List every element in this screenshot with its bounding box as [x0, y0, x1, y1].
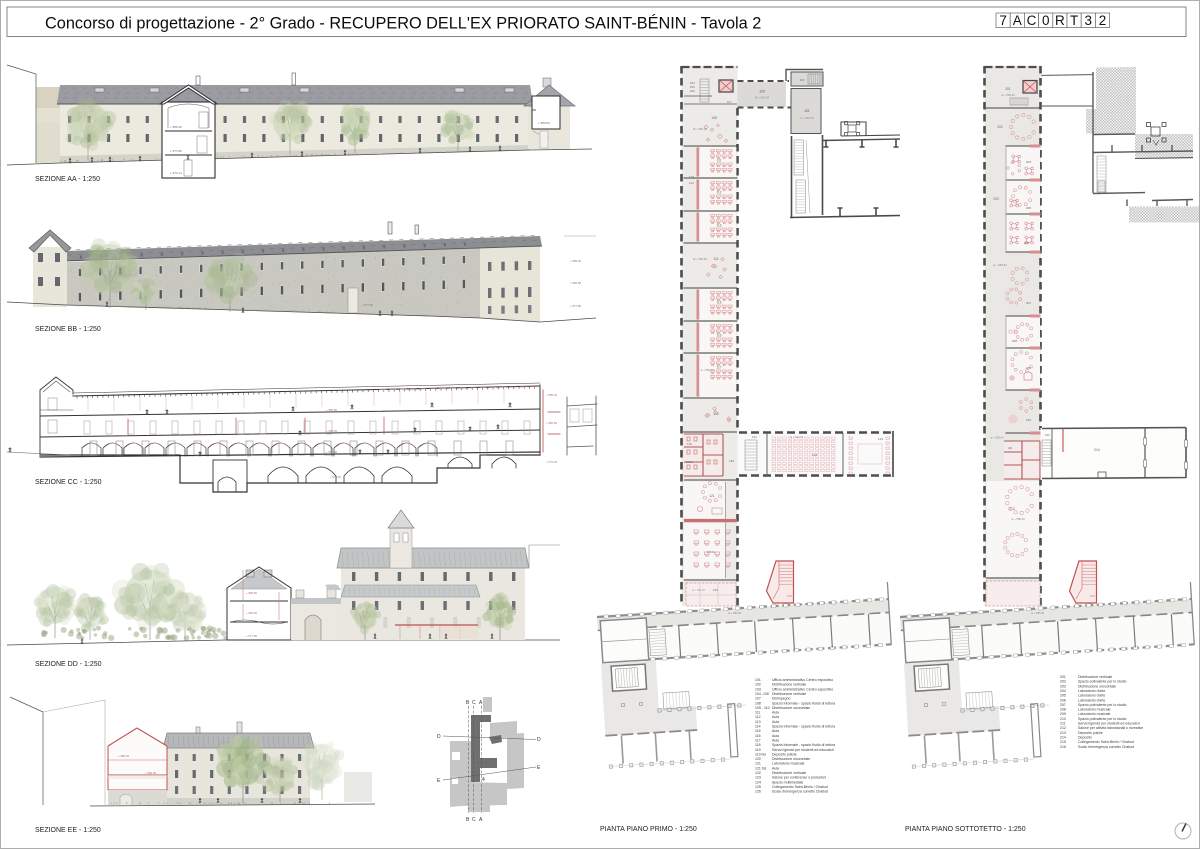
svg-text:115: 115: [755, 729, 761, 733]
svg-text:117: 117: [755, 738, 761, 742]
svg-text:Distribuzione orizzontale: Distribuzione orizzontale: [1078, 684, 1116, 688]
svg-text:SEZIONE AA - 1:250: SEZIONE AA - 1:250: [35, 176, 100, 183]
svg-text:SEZIONE BB - 1:250: SEZIONE BB - 1:250: [35, 326, 101, 333]
svg-text:C: C: [472, 700, 476, 706]
svg-text:D: D: [537, 737, 541, 743]
svg-text:215: 215: [1060, 740, 1066, 744]
svg-text:⊕ + 582.84: ⊕ + 582.84: [790, 435, 804, 439]
svg-text:206: 206: [1060, 698, 1066, 702]
svg-text:Spazio informale - spazio flui: Spazio informale - spazio fluido di lett…: [772, 725, 835, 729]
svg-text:114: 114: [713, 257, 718, 261]
svg-text:125: 125: [755, 785, 761, 789]
svg-text:+ 577.96: + 577.96: [326, 450, 337, 454]
svg-text:7: 7: [999, 13, 1007, 28]
svg-text:PIANTA PIANO SOTTOTETTO - 1:25: PIANTA PIANO SOTTOTETTO - 1:250: [905, 826, 1026, 833]
svg-text:205: 205: [1060, 694, 1066, 698]
svg-text:203: 203: [993, 197, 999, 201]
svg-text:PIANTA PIANO PRIMO - 1:250: PIANTA PIANO PRIMO - 1:250: [600, 826, 697, 833]
svg-text:206: 206: [1024, 241, 1029, 245]
svg-text:204: 204: [1026, 160, 1031, 164]
svg-text:+ 580.36: + 580.36: [170, 125, 182, 129]
svg-text:Spazio polivalente per lo stud: Spazio polivalente per lo studio: [1078, 717, 1127, 721]
svg-text:C: C: [472, 817, 476, 823]
svg-text:Salone per conferenze o proiez: Salone per conferenze o proiezioni: [772, 776, 826, 780]
svg-text:Aula: Aula: [772, 715, 779, 719]
svg-text:T: T: [1070, 13, 1078, 28]
svg-text:⊕ + 582.25: ⊕ + 582.25: [693, 257, 708, 261]
svg-text:⊕ + 581.50: ⊕ + 581.50: [692, 588, 706, 592]
svg-text:Distribuzione orizzontale: Distribuzione orizzontale: [772, 706, 810, 710]
svg-text:124: 124: [755, 780, 761, 784]
svg-text:Aula: Aula: [772, 729, 779, 733]
svg-text:⊕ + 586.84: ⊕ + 586.84: [993, 263, 1007, 267]
svg-text:114: 114: [755, 725, 761, 729]
svg-text:120: 120: [729, 459, 734, 463]
svg-text:C: C: [1027, 13, 1037, 28]
svg-text:Distribuzione verticale: Distribuzione verticale: [772, 771, 806, 775]
svg-text:Aula: Aula: [772, 734, 779, 738]
svg-text:Scala d'emergenza convitto Cha: Scala d'emergenza convitto Chabod: [1078, 745, 1134, 749]
svg-text:112: 112: [716, 191, 721, 195]
svg-text:Laboratorio d'arte: Laboratorio d'arte: [1078, 694, 1105, 698]
svg-text:104 -106: 104 -106: [755, 692, 769, 696]
svg-text:213: 213: [1045, 433, 1050, 437]
svg-text:121: 121: [709, 494, 715, 498]
svg-text:Salone per attività laboratori: Salone per attività laboratoriali o ricr…: [1078, 726, 1143, 730]
svg-text:+ 582.56: + 582.56: [570, 281, 581, 285]
svg-text:Distribuzione verticale: Distribuzione verticale: [772, 683, 806, 687]
svg-text:121 bis: 121 bis: [755, 766, 767, 770]
svg-text:2: 2: [1099, 13, 1107, 28]
svg-text:Collegamento Saint-Bénin / Cha: Collegamento Saint-Bénin / Chabod: [772, 785, 828, 789]
svg-text:Concorso di progettazione - 2°: Concorso di progettazione - 2° Grado - R…: [45, 14, 761, 33]
svg-text:212: 212: [1060, 726, 1066, 730]
svg-text:113: 113: [755, 720, 761, 724]
svg-text:⊕ + 581.50: ⊕ + 581.50: [728, 611, 742, 615]
svg-text:213: 213: [1060, 731, 1066, 735]
svg-text:121: 121: [755, 762, 761, 766]
svg-text:118: 118: [755, 743, 761, 747]
svg-text:Spazio informale - spazio flui: Spazio informale - spazio fluido di lett…: [772, 743, 835, 747]
svg-text:⊕ + 586.29: ⊕ + 586.29: [1011, 517, 1025, 521]
svg-text:201: 201: [1005, 87, 1011, 91]
svg-text:+ 582.84: + 582.84: [538, 121, 550, 125]
svg-text:Laboratorio musicale: Laboratorio musicale: [1078, 712, 1111, 716]
svg-text:107: 107: [755, 697, 761, 701]
svg-text:Deposito: Deposito: [1078, 735, 1092, 739]
svg-text:122: 122: [755, 771, 761, 775]
svg-text:SEZIONE EE - 1:250: SEZIONE EE - 1:250: [35, 827, 101, 834]
svg-text:210: 210: [1026, 418, 1031, 422]
svg-text:Scala d'emergenza convitto Cha: Scala d'emergenza convitto Chabod: [772, 790, 828, 794]
svg-text:113: 113: [716, 224, 721, 228]
svg-text:108: 108: [711, 116, 717, 120]
svg-text:214: 214: [1094, 448, 1100, 452]
svg-text:Distribuzione verticale: Distribuzione verticale: [772, 692, 806, 696]
svg-text:R: R: [1055, 13, 1065, 28]
svg-text:4: 4: [482, 777, 485, 783]
svg-text:+ 574.26: + 574.26: [330, 475, 341, 479]
svg-text:119: 119: [687, 442, 692, 446]
svg-text:Collegamento Saint-Bénin / Cha: Collegamento Saint-Bénin / Chabod: [1078, 740, 1134, 744]
svg-text:106: 106: [690, 89, 695, 93]
svg-text:216: 216: [1090, 594, 1095, 598]
svg-text:116: 116: [755, 734, 761, 738]
svg-text:Distribuzione orizzontale: Distribuzione orizzontale: [772, 757, 810, 761]
svg-text:119bis: 119bis: [686, 460, 694, 464]
svg-text:Distribuzione verticale: Distribuzione verticale: [1078, 675, 1112, 679]
svg-text:+ 582.35: + 582.35: [145, 771, 156, 775]
svg-text:123: 123: [812, 453, 817, 457]
svg-text:107: 107: [727, 100, 732, 104]
svg-text:209: 209: [1026, 366, 1031, 370]
svg-text:D: D: [437, 734, 441, 740]
svg-text:0: 0: [1042, 13, 1050, 28]
svg-text:126: 126: [755, 790, 761, 794]
svg-text:101: 101: [755, 678, 761, 682]
svg-text:102: 102: [755, 683, 761, 687]
svg-text:+ 576.36: + 576.36: [546, 460, 557, 464]
svg-text:+ 585.26: + 585.26: [570, 259, 581, 263]
svg-text:111: 111: [755, 711, 760, 715]
svg-text:SEZIONE DD - 1:250: SEZIONE DD - 1:250: [35, 661, 102, 668]
svg-text:+ 585.26: + 585.26: [546, 393, 557, 397]
svg-text:Spazio polivalente per lo stud: Spazio polivalente per lo studio: [1078, 680, 1127, 684]
svg-text:122: 122: [752, 435, 757, 439]
svg-text:211: 211: [1060, 722, 1066, 726]
svg-text:210: 210: [1060, 717, 1066, 721]
svg-text:125: 125: [713, 588, 718, 592]
svg-text:+ 577.96: + 577.96: [362, 303, 373, 307]
svg-text:109 - 110: 109 - 110: [755, 706, 770, 710]
svg-text:108: 108: [755, 701, 761, 705]
svg-text:3: 3: [1085, 13, 1093, 28]
svg-text:⊕ + 585.64: ⊕ + 585.64: [990, 436, 1004, 440]
svg-text:216: 216: [1060, 745, 1066, 749]
svg-text:103: 103: [759, 90, 765, 94]
svg-text:111: 111: [717, 159, 722, 163]
svg-text:117: 117: [716, 366, 721, 370]
svg-text:Laboratorio d'arte: Laboratorio d'arte: [1078, 698, 1105, 702]
svg-text:204: 204: [1060, 689, 1066, 693]
svg-text:Ufficio amministrativo Centro: Ufficio amministrativo Centro espositivo: [772, 678, 833, 682]
svg-text:+ 577.96: + 577.96: [570, 304, 581, 308]
svg-text:Aula: Aula: [772, 738, 779, 742]
svg-text:116: 116: [716, 334, 721, 338]
svg-text:Spazio informale - spazio flui: Spazio informale - spazio fluido di lett…: [772, 701, 835, 705]
svg-text:Disimpegno: Disimpegno: [772, 697, 791, 701]
svg-text:Aula: Aula: [772, 711, 779, 715]
svg-text:211: 211: [1008, 446, 1013, 450]
svg-text:Laboratorio musicale: Laboratorio musicale: [772, 762, 805, 766]
svg-text:Spazio multimediale: Spazio multimediale: [772, 780, 803, 784]
svg-text:⊕ + 582.25: ⊕ + 582.25: [700, 368, 714, 372]
svg-text:119 bis: 119 bis: [755, 752, 766, 756]
svg-text:⊕ + 582.84: ⊕ + 582.84: [755, 96, 770, 100]
svg-text:+ 585.86: + 585.86: [326, 408, 337, 412]
svg-text:201: 201: [1060, 675, 1066, 679]
svg-text:109: 109: [689, 175, 694, 179]
svg-text:Deposito pulizie: Deposito pulizie: [1078, 731, 1103, 735]
svg-text:+ 577.98: + 577.98: [246, 634, 257, 638]
svg-text:123: 123: [755, 776, 761, 780]
svg-text:+ 580.60: + 580.60: [246, 591, 257, 595]
svg-text:119: 119: [755, 748, 761, 752]
svg-text:207: 207: [1026, 301, 1031, 305]
svg-text:202: 202: [997, 125, 1003, 129]
svg-text:Deposito pulizie: Deposito pulizie: [772, 752, 797, 756]
svg-text:205: 205: [1026, 206, 1031, 210]
svg-text:Laboratorio musicale: Laboratorio musicale: [1078, 708, 1111, 712]
svg-text:Aula: Aula: [772, 766, 779, 770]
svg-text:⊕ + 582.25: ⊕ + 582.25: [693, 127, 708, 131]
svg-text:208: 208: [1060, 708, 1066, 712]
svg-text:⊕ + 585.06: ⊕ + 585.06: [1031, 611, 1045, 615]
svg-text:⊕ + 584.40: ⊕ + 584.40: [800, 116, 814, 120]
svg-text:A: A: [1013, 13, 1022, 28]
svg-text:214: 214: [1060, 735, 1066, 739]
svg-text:103: 103: [755, 687, 761, 691]
svg-text:112: 112: [755, 715, 761, 719]
svg-text:203: 203: [1060, 684, 1066, 688]
svg-text:126: 126: [787, 594, 792, 598]
svg-text:120: 120: [755, 757, 761, 761]
svg-text:Spazio polivalente per lo stud: Spazio polivalente per lo studio: [1078, 703, 1127, 707]
svg-text:+ 582.25: + 582.25: [246, 611, 257, 615]
svg-text:Ufficio amministrativo Centro: Ufficio amministrativo Centro espositivo: [772, 687, 833, 691]
svg-text:209: 209: [1060, 712, 1066, 716]
svg-text:+ 580.29: + 580.29: [118, 754, 129, 758]
svg-text:Laboratorio d'arte: Laboratorio d'arte: [1078, 689, 1105, 693]
svg-text:207: 207: [1060, 703, 1066, 707]
svg-text:+ 577.86: + 577.86: [170, 149, 182, 153]
svg-text:202: 202: [1060, 680, 1066, 684]
svg-text:115: 115: [716, 301, 721, 305]
svg-text:110: 110: [689, 181, 694, 185]
svg-text:SEZIONE CC - 1:250: SEZIONE CC - 1:250: [35, 479, 102, 486]
svg-text:+ 582.56: + 582.56: [546, 421, 557, 425]
svg-text:⊕ + 586.84: ⊕ + 586.84: [1001, 93, 1015, 97]
svg-text:102: 102: [800, 78, 805, 82]
svg-text:+ 582.25: + 582.25: [326, 429, 337, 433]
svg-text:208: 208: [1012, 339, 1017, 343]
svg-text:+ 574.14: + 574.14: [170, 171, 182, 175]
svg-text:101: 101: [804, 109, 810, 113]
svg-text:Servizi igienici per studenti: Servizi igienici per studenti ed educato…: [1078, 722, 1140, 726]
svg-text:Aula: Aula: [772, 720, 779, 724]
svg-text:124: 124: [878, 437, 883, 441]
svg-text:Servizi igienici per studenti: Servizi igienici per studenti ed educato…: [772, 748, 834, 752]
